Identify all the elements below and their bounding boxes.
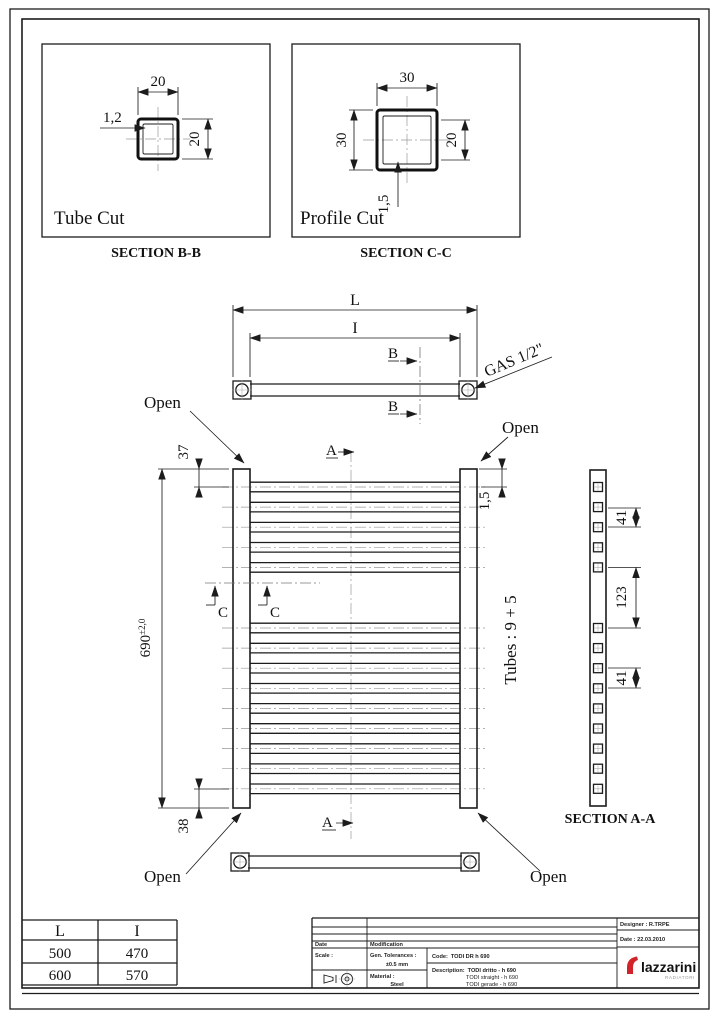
- section-marker-a-bottom: A: [322, 815, 333, 831]
- titleblock-scale-label: Scale :: [315, 953, 333, 959]
- size-table-cell: 470: [126, 946, 149, 962]
- profile-cut-detail: 30 30 20 1,5 Profile Cut: [292, 44, 520, 237]
- drawing-canvas: 20 20 1,2 Tube Cut SECTION B-B 30 30 20: [0, 0, 720, 1019]
- size-table-header-I: I: [134, 923, 139, 940]
- radiator-tubes: [222, 482, 488, 793]
- titleblock-designer: Designer : R.TRPE: [620, 922, 670, 928]
- dim-pitch-bottom-label: 41: [614, 671, 630, 686]
- title-block: Date Modification Scale : Gen. Tolerance…: [312, 918, 699, 988]
- titleblock-tolerances-value: ±0.5 mm: [386, 962, 408, 968]
- section-aa-tubes: [594, 483, 603, 794]
- top-view: L I B B GAS 1/2": [232, 292, 552, 424]
- section-aa-view: 41 123 41 SECTION A-A: [565, 470, 657, 827]
- tube-cut-wall-dim: 1,2: [103, 110, 122, 126]
- profile-cut-label: Profile Cut: [300, 208, 385, 229]
- dim-L-label: L: [350, 292, 360, 309]
- open-label-top-left: Open: [144, 393, 181, 412]
- tube-cut-label: Tube Cut: [54, 208, 125, 229]
- section-bb-caption: SECTION B-B: [111, 246, 201, 261]
- gas-connection-label: GAS 1/2": [482, 340, 547, 380]
- lazzarini-logo-text: lazzarini: [641, 959, 696, 975]
- section-marker-a-top: A: [326, 443, 337, 459]
- titleblock-material-label: Material :: [370, 974, 395, 980]
- section-marker-c-right: C: [270, 605, 280, 621]
- section-aa-caption: SECTION A-A: [565, 812, 657, 827]
- projection-symbol-icon: [324, 971, 355, 987]
- front-view: 690±2,0 37 38 1,5 Tubes : 9 + 5 C C A: [137, 393, 567, 886]
- profile-cut-width-dim: 30: [400, 70, 415, 86]
- size-table-cell: 500: [49, 946, 72, 962]
- technical-drawing-page: 20 20 1,2 Tube Cut SECTION B-B 30 30 20: [0, 0, 720, 1019]
- dim-bottom-offset-label: 38: [176, 819, 192, 834]
- lazzarini-logo-subtext: RADIATORI: [665, 975, 695, 980]
- tube-cut-width-dim: 20: [151, 74, 166, 90]
- titleblock-modification-label: Modification: [370, 942, 404, 948]
- titleblock-description: Description:TODI dritto - h 690: [432, 968, 516, 974]
- dim-top-offset-label: 37: [176, 444, 192, 460]
- titleblock-description-line2: TODI straight - h 690: [466, 975, 518, 981]
- titleblock-tolerances-label: Gen. Tolerances :: [370, 953, 417, 959]
- dim-wall-label: 1,5: [477, 492, 493, 511]
- lazzarini-logo-icon: [627, 957, 638, 975]
- size-table-cell: 570: [126, 968, 149, 984]
- profile-cut-height-dim: 30: [334, 133, 350, 148]
- section-marker-b-top: B: [388, 346, 398, 362]
- titleblock-date: Date : 22.03.2010: [620, 937, 665, 943]
- titleblock-code: Code:TODI DR h 690: [432, 954, 490, 960]
- section-marker-c-left: C: [218, 605, 228, 621]
- lazzarini-logo: lazzarini RADIATORI: [627, 957, 696, 981]
- dim-height-label: 690±2,0: [137, 618, 154, 657]
- open-label-top-right: Open: [502, 418, 539, 437]
- open-label-bottom-left: Open: [144, 867, 181, 886]
- page-border: [10, 9, 709, 1009]
- size-table-header-L: L: [55, 923, 65, 940]
- bottom-view: [230, 852, 480, 872]
- dim-gap-label: 123: [614, 586, 630, 609]
- size-table: L I 500 470 600 570: [22, 920, 177, 985]
- titleblock-description-line3: TODI gerade - h 690: [466, 982, 517, 988]
- dim-I-label: I: [352, 320, 357, 337]
- profile-cut-inner-dim: 20: [444, 133, 460, 148]
- tube-cut-detail: 20 20 1,2 Tube Cut: [42, 44, 270, 237]
- titleblock-material-value: Steel: [390, 982, 404, 988]
- section-marker-b-bottom: B: [388, 399, 398, 415]
- size-table-cell: 600: [49, 968, 72, 984]
- tubes-count-label: Tubes : 9 + 5: [501, 595, 520, 684]
- tube-cut-height-dim: 20: [187, 132, 203, 147]
- open-label-bottom-right: Open: [530, 867, 567, 886]
- titleblock-date-col-label: Date: [315, 942, 327, 948]
- section-cc-caption: SECTION C-C: [360, 246, 451, 261]
- dim-pitch-top-label: 41: [614, 510, 630, 525]
